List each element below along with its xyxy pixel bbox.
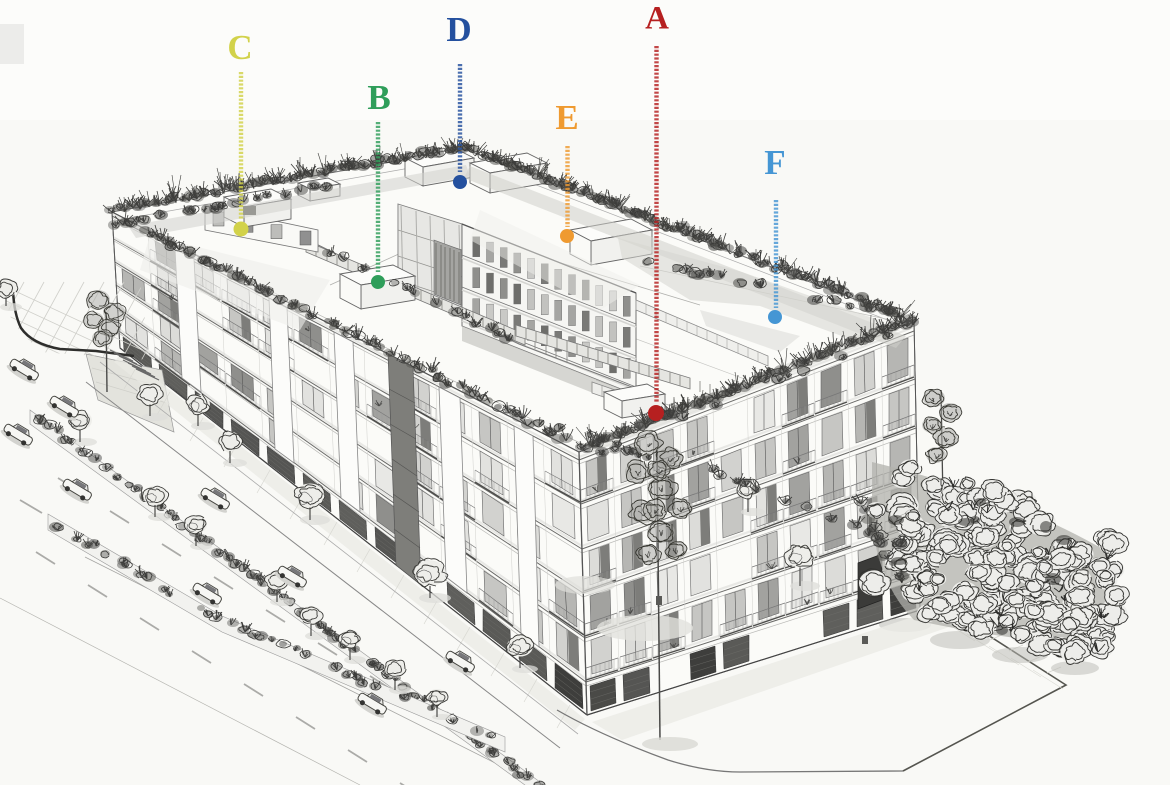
svg-text:A: A [645,1,669,37]
svg-text:C: C [227,28,252,67]
svg-text:F: F [764,143,785,182]
svg-text:D: D [446,10,471,49]
svg-text:B: B [367,78,390,117]
svg-text:E: E [555,98,578,137]
